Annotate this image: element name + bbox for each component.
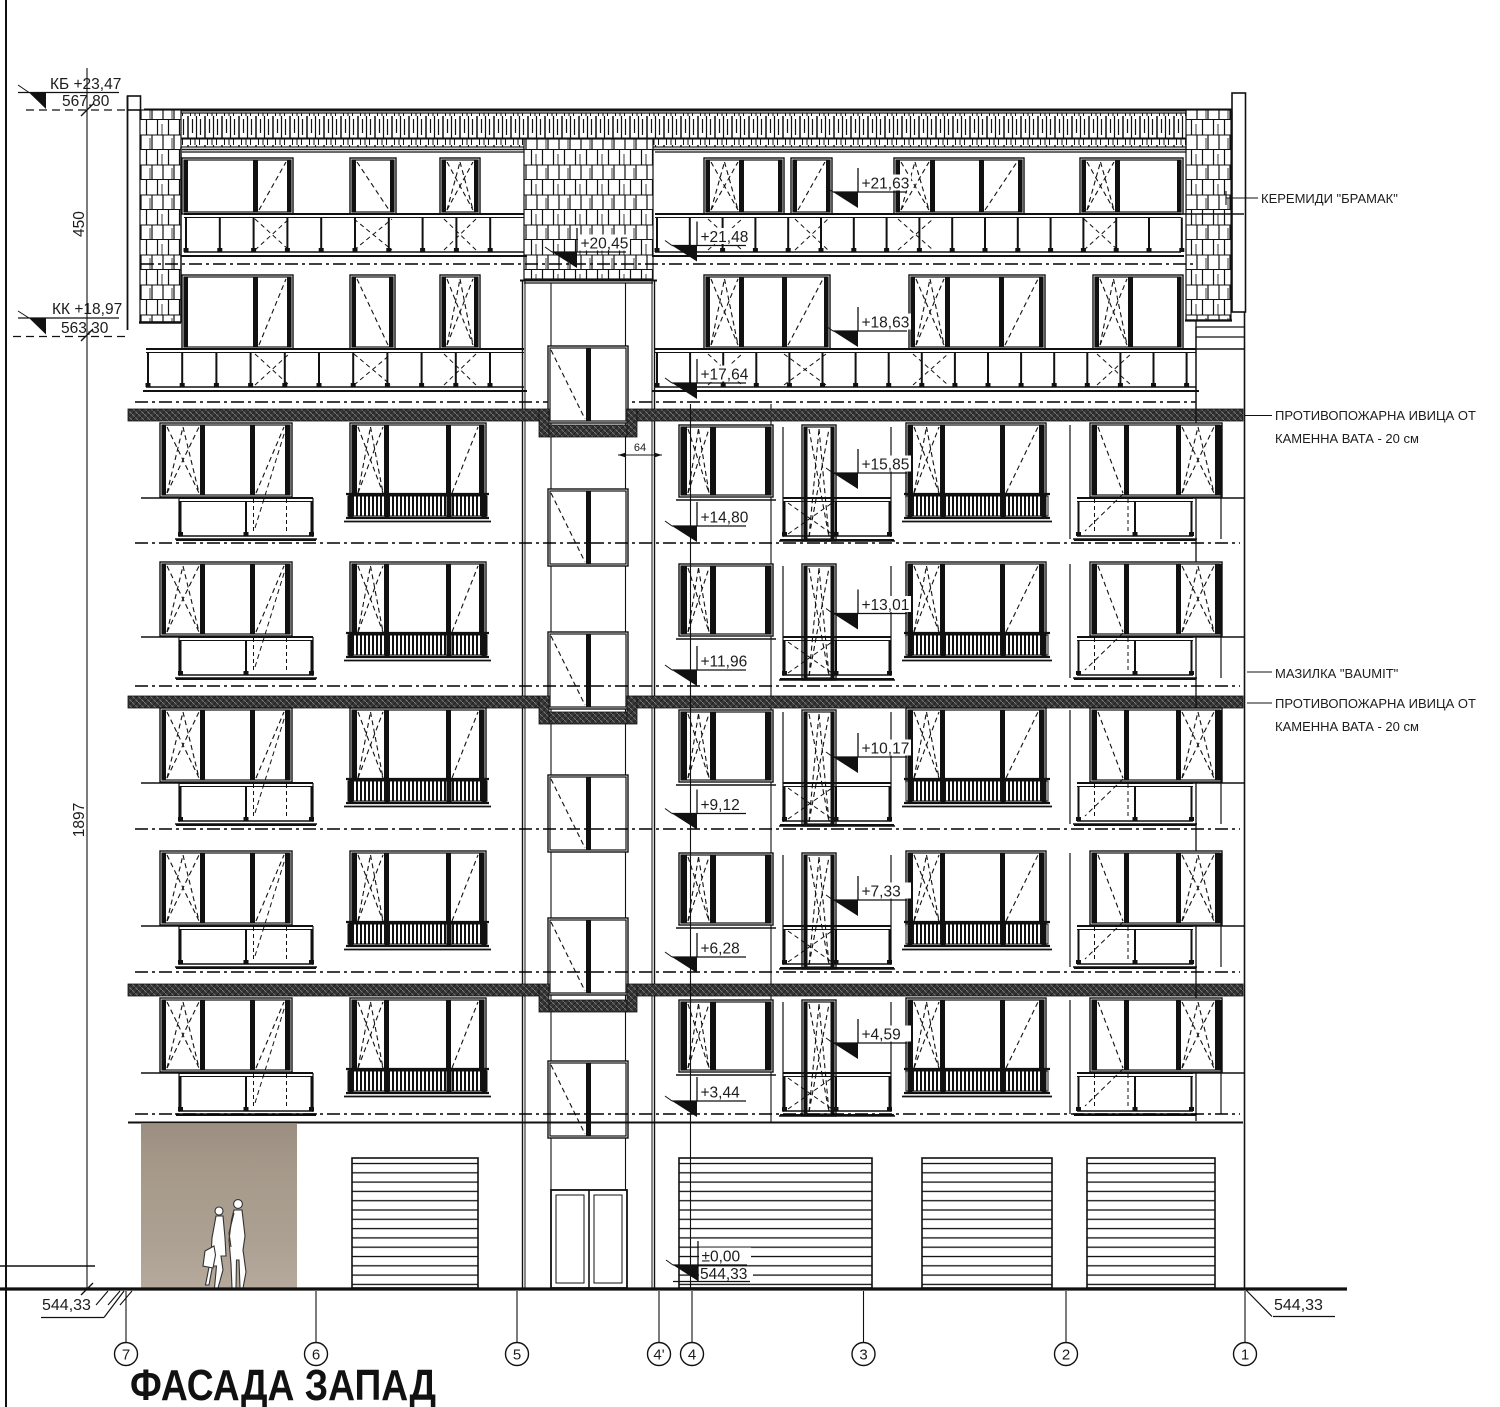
svg-text:КАМЕННА ВАТА - 20 см: КАМЕННА ВАТА - 20 см	[1275, 431, 1419, 446]
svg-text:563,30: 563,30	[61, 320, 109, 337]
svg-text:64: 64	[634, 442, 646, 454]
svg-text:5: 5	[513, 1347, 521, 1364]
svg-text:КЕРЕМИДИ "БРАМАК": КЕРЕМИДИ "БРАМАК"	[1261, 191, 1398, 206]
svg-text:1897: 1897	[71, 803, 88, 837]
svg-text:+15,85: +15,85	[862, 457, 910, 474]
svg-text:+14,80: +14,80	[701, 510, 749, 527]
svg-text:+11,96: +11,96	[701, 654, 748, 671]
svg-text:2: 2	[1062, 1347, 1070, 1364]
svg-text:КБ +23,47: КБ +23,47	[50, 76, 121, 93]
svg-text:544,33: 544,33	[700, 1266, 747, 1283]
svg-text:+17,64: +17,64	[701, 367, 749, 384]
svg-text:7: 7	[122, 1347, 130, 1364]
svg-text:450: 450	[71, 211, 88, 237]
svg-text:+9,12: +9,12	[701, 797, 740, 814]
svg-text:КАМЕННА ВАТА - 20 см: КАМЕННА ВАТА - 20 см	[1275, 719, 1419, 734]
svg-text:567,80: 567,80	[62, 93, 110, 110]
svg-text:+20,45: +20,45	[581, 236, 629, 253]
svg-text:ПРОТИВОПОЖАРНА ИВИЦА ОТ: ПРОТИВОПОЖАРНА ИВИЦА ОТ	[1275, 696, 1476, 711]
svg-text:4: 4	[688, 1347, 696, 1364]
svg-text:+10,17: +10,17	[862, 741, 910, 758]
svg-text:+13,01: +13,01	[862, 597, 910, 614]
svg-text:+6,28: +6,28	[701, 941, 740, 958]
svg-text:+21,63: +21,63	[862, 176, 910, 193]
svg-text:ФАСАДА ЗАПАД: ФАСАДА ЗАПАД	[130, 1361, 436, 1407]
svg-text:+3,44: +3,44	[701, 1085, 741, 1102]
svg-text:МАЗИЛКА "BAUMIT": МАЗИЛКА "BAUMIT"	[1275, 666, 1399, 681]
svg-text:1: 1	[1241, 1347, 1249, 1364]
svg-text:4': 4'	[653, 1347, 664, 1364]
svg-text:+4,59: +4,59	[862, 1027, 901, 1044]
svg-text:+18,63: +18,63	[862, 315, 910, 332]
svg-text:±0,00: ±0,00	[702, 1249, 741, 1266]
svg-text:544,33: 544,33	[1274, 1297, 1323, 1314]
svg-text:544,33: 544,33	[42, 1297, 91, 1314]
svg-text:+21,48: +21,48	[701, 229, 749, 246]
svg-text:ПРОТИВОПОЖАРНА ИВИЦА ОТ: ПРОТИВОПОЖАРНА ИВИЦА ОТ	[1275, 408, 1476, 423]
svg-text:3: 3	[859, 1347, 867, 1364]
svg-text:+7,33: +7,33	[862, 884, 901, 901]
